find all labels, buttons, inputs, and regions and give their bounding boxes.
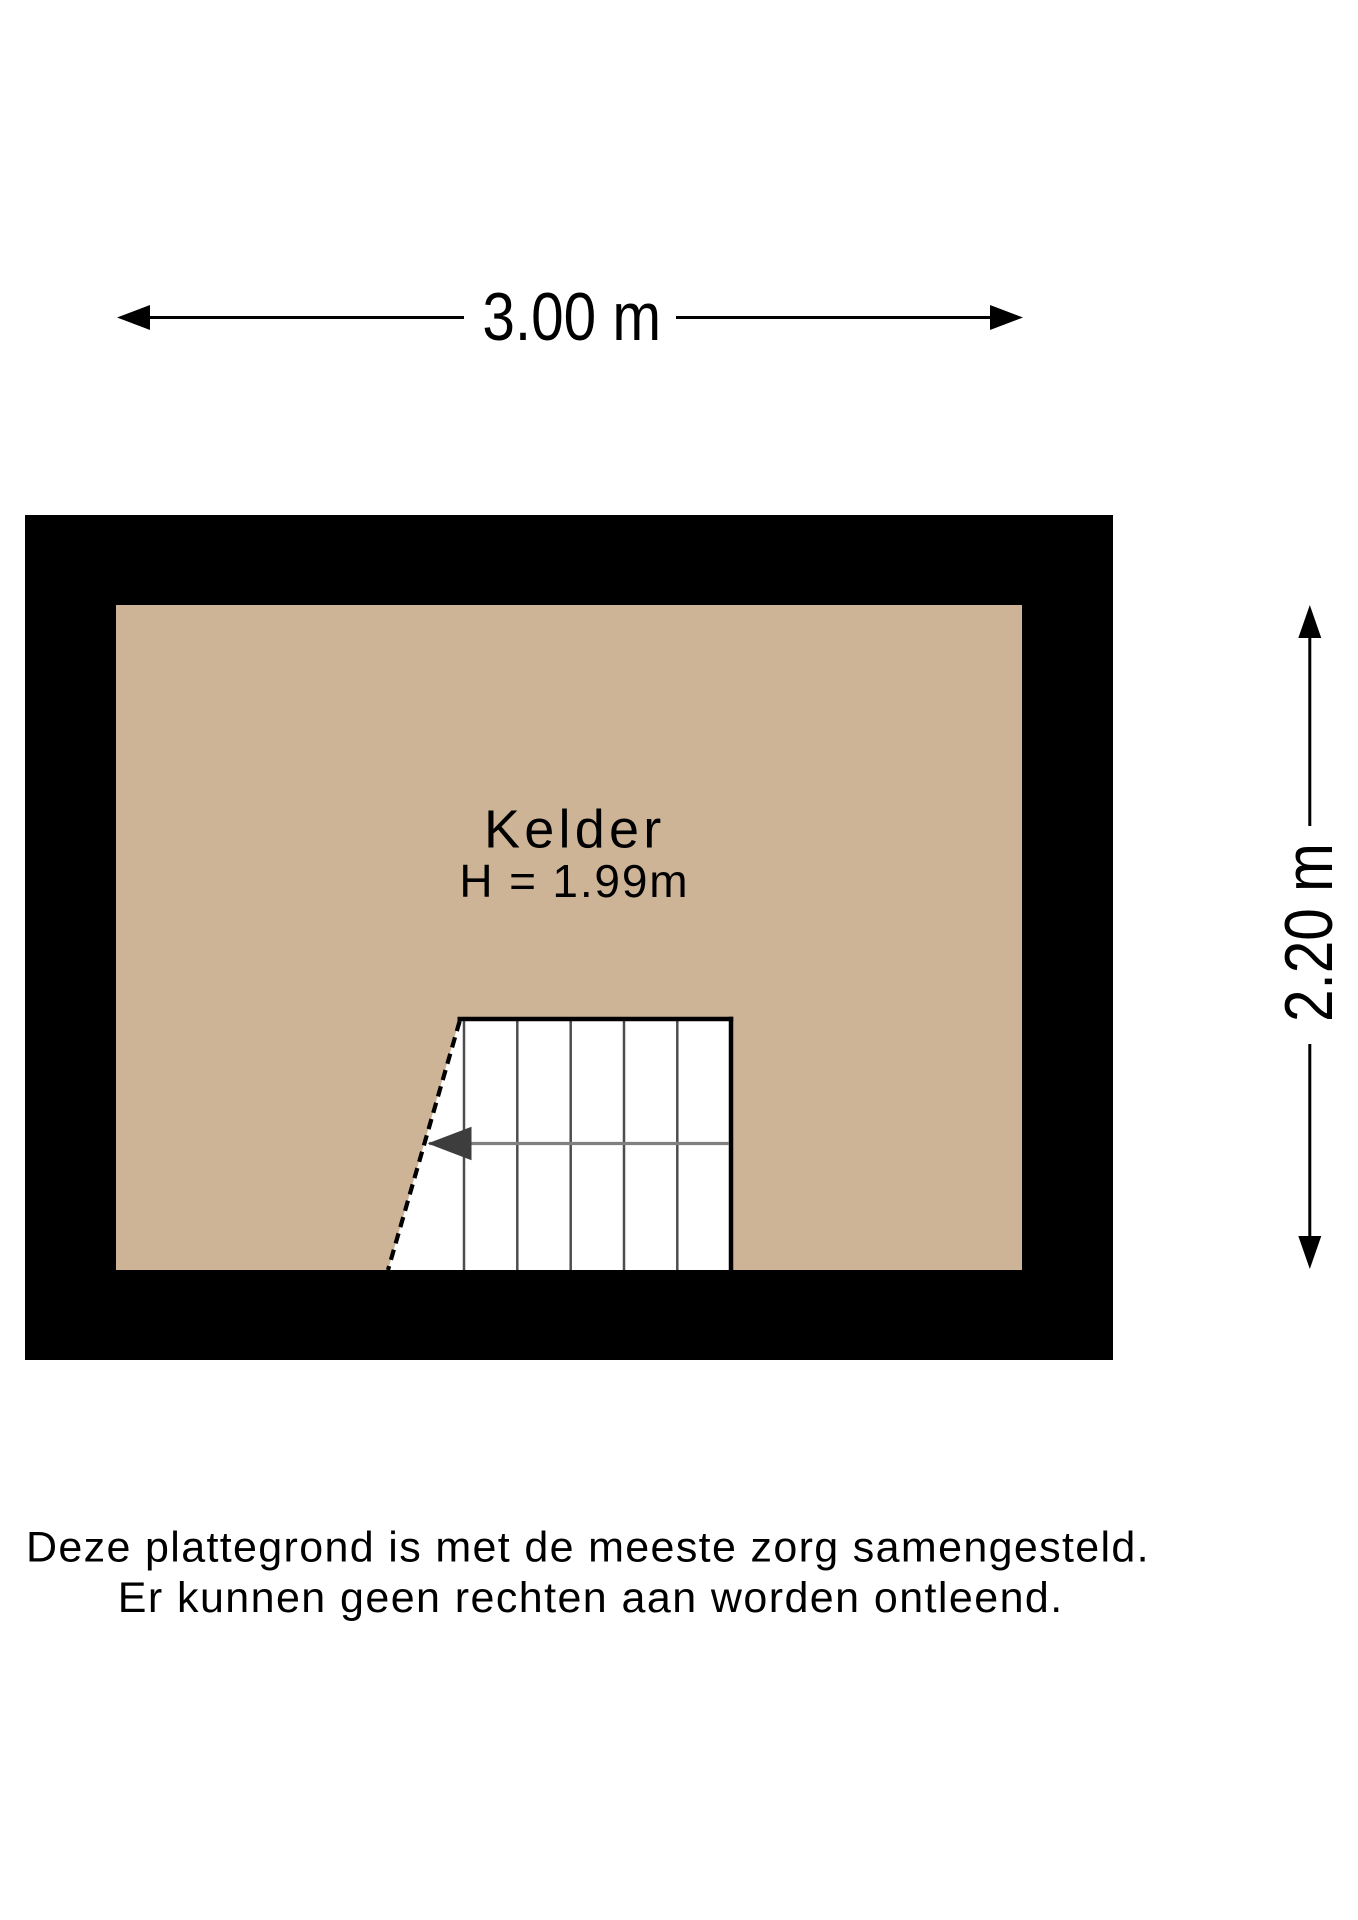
svg-text:Er kunnen geen rechten aan wor: Er kunnen geen rechten aan worden ontlee… xyxy=(118,1574,1062,1622)
svg-text:3.00 m: 3.00 m xyxy=(482,280,661,355)
svg-text:Deze plattegrond is met de mee: Deze plattegrond is met de meeste zorg s… xyxy=(26,1524,1149,1572)
svg-text:H = 1.99m: H = 1.99m xyxy=(459,855,687,907)
svg-text:2.20 m: 2.20 m xyxy=(1272,843,1347,1022)
